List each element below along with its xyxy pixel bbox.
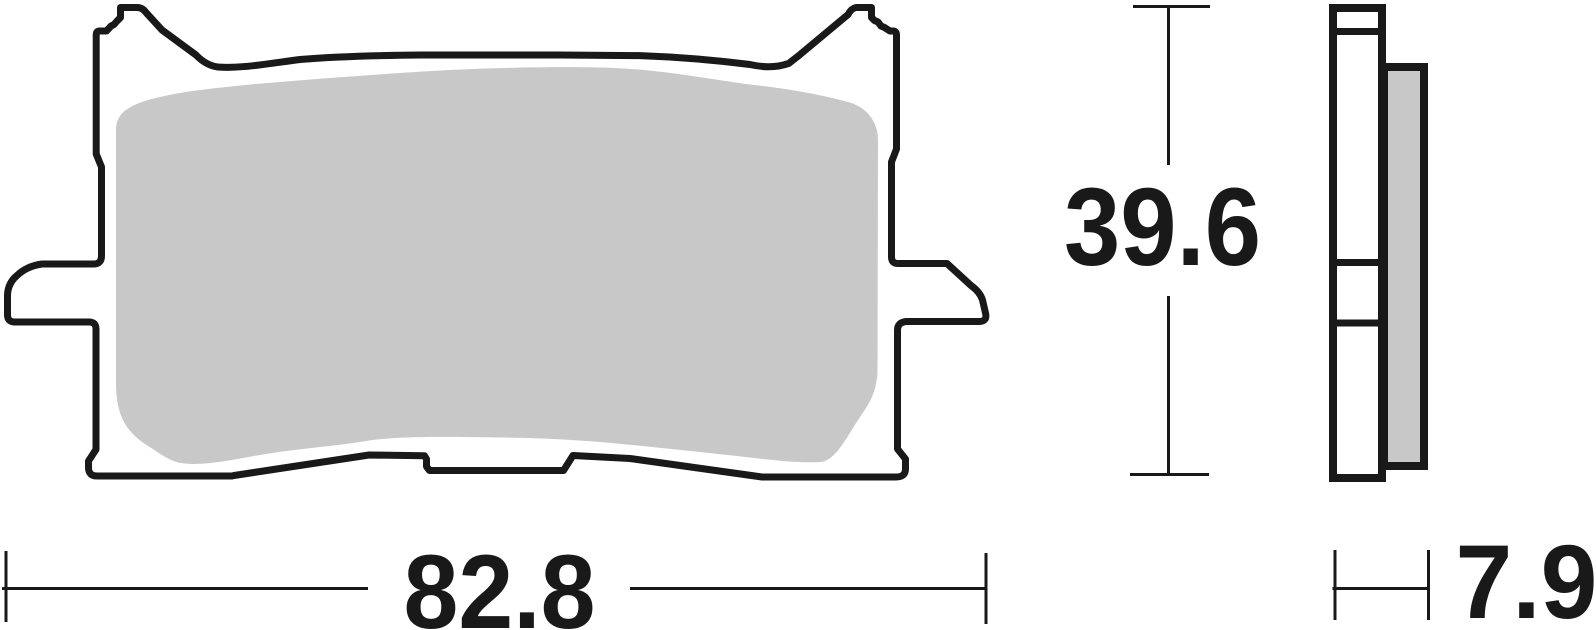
svg-text:82.8: 82.8: [404, 534, 596, 630]
svg-text:7.9: 7.9: [1456, 524, 1596, 630]
svg-text:39.6: 39.6: [1064, 166, 1261, 289]
